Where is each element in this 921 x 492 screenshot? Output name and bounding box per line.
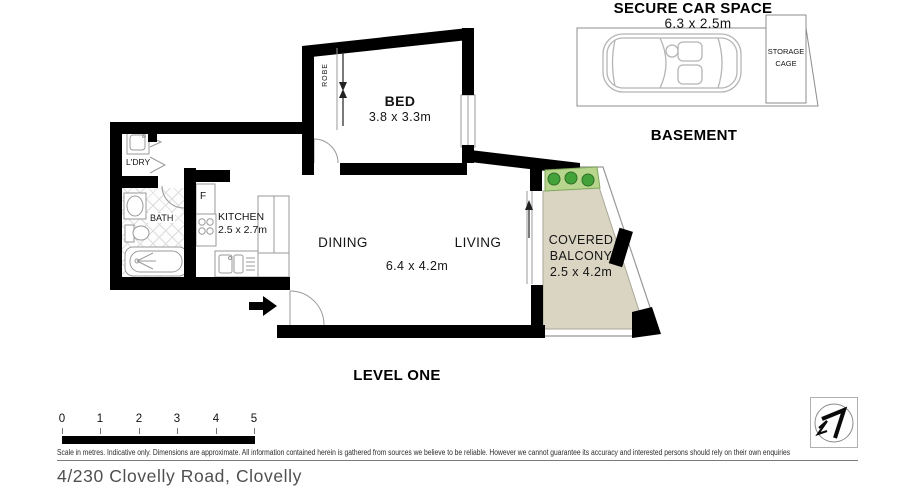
agency-logo (810, 397, 858, 448)
stove-cooktop (196, 214, 216, 246)
fridge-label: F (200, 191, 206, 202)
scale-tick-label: 1 (94, 413, 106, 425)
scale-tick (216, 428, 217, 434)
ldry-bifold-door (150, 157, 165, 173)
wall-wing-bottom (110, 277, 290, 290)
bedroom-door-arc (314, 139, 338, 163)
scale-tick (139, 428, 140, 434)
bath-door-arc (162, 186, 184, 208)
toilet (125, 225, 149, 242)
car-space-dims: 6.3 x 2.5m (598, 16, 798, 31)
plant-icon (582, 174, 594, 186)
wall-bed-right-lower (462, 145, 474, 163)
balcony-corner-wall (632, 307, 661, 338)
bed-window (461, 95, 475, 147)
entry-arrow-icon (249, 296, 277, 316)
disclaimer-text: Scale in metres. Indicative only. Dimens… (57, 448, 858, 461)
laundry-tub (127, 132, 149, 154)
basement-title: BASEMENT (614, 127, 774, 144)
entry-door-arc (290, 291, 324, 325)
plant-icon (548, 173, 560, 185)
bed-room-label: BED (340, 93, 460, 109)
storage-cage-label-line1: STORAGE (764, 47, 808, 56)
scale-tick-label: 2 (133, 413, 145, 425)
floorplan-page: BED 3.8 x 3.3m ROBE L'DRY BATH F KITCHEN… (0, 0, 921, 492)
scale-tick (177, 428, 178, 434)
scale-tick (100, 428, 101, 434)
car-space-title: SECURE CAR SPACE (593, 0, 793, 17)
vanity-basin (124, 193, 146, 219)
address-text: 4/230 Clovelly Road, Clovelly (57, 466, 302, 487)
dining-label: DINING (283, 235, 403, 250)
wall-balcony-pier (530, 169, 542, 191)
wall-ldry-bottom (110, 176, 158, 188)
scale-tick-label: 3 (171, 413, 183, 425)
wall-top-left-wing (110, 122, 314, 134)
scale-tick-label: 0 (56, 413, 68, 425)
scale-tick-label: 5 (248, 413, 260, 425)
plant-icon (565, 172, 577, 184)
robe-label: ROBE (310, 55, 340, 95)
wall-living-bottom-stub (531, 285, 543, 325)
scale-tick (254, 428, 255, 434)
wall-bed-right-upper (462, 28, 474, 95)
wall-living-bottom (277, 325, 545, 338)
wall-left-outer (110, 122, 122, 290)
laundry-label: L'DRY (126, 157, 150, 167)
wall-bed-bottom (340, 163, 467, 175)
storage-cage-label-line2: CAGE (764, 59, 808, 68)
level-one-title: LEVEL ONE (317, 367, 477, 384)
balcony-dims: 2.5 x 4.2m (531, 265, 631, 279)
wall-top-stub (148, 134, 157, 142)
scale-bar-rule (62, 436, 255, 444)
living-dining-dims: 6.4 x 4.2m (357, 259, 477, 273)
wall-bed-top (302, 28, 468, 58)
kitchen-sink (215, 251, 258, 277)
bed-room-dims: 3.8 x 3.3m (340, 110, 460, 124)
bath-fixtures (124, 132, 187, 276)
bathtub (125, 247, 187, 276)
kitchen-label: KITCHEN (218, 211, 264, 223)
balcony-label-line1: COVERED (531, 233, 631, 247)
scale-tick (62, 428, 63, 434)
scale-tick-label: 4 (210, 413, 222, 425)
wall-fridge-top (184, 170, 230, 182)
balcony-label-line2: BALCONY (531, 249, 631, 263)
bath-label: BATH (148, 213, 175, 223)
kitchen-dims: 2.5 x 2.7m (218, 224, 267, 236)
wall-bath-kitchen (184, 168, 196, 277)
living-label: LIVING (418, 235, 538, 250)
